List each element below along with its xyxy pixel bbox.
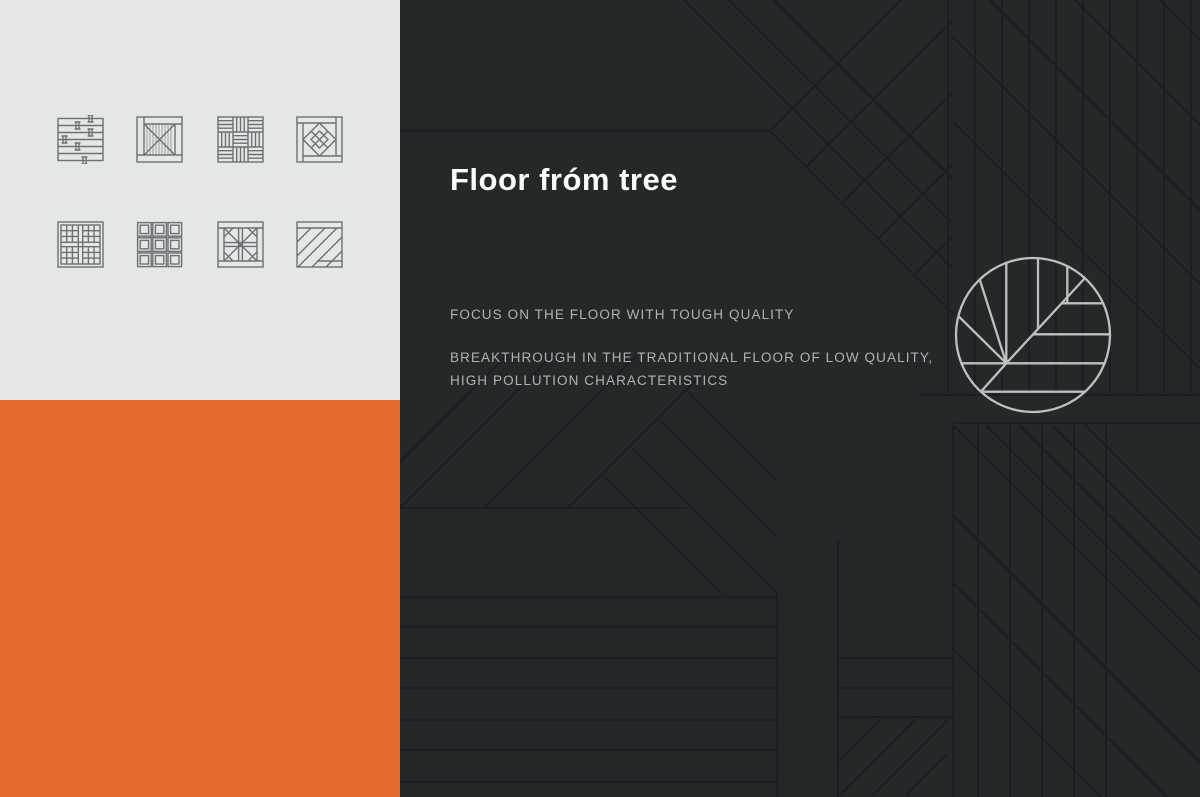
log-cabin-cross-icon [135,115,184,164]
square-tiles-icon [135,220,184,269]
description-line-2: HIGH POLLUTION CHARACTERISTICS [450,369,933,392]
welcome-panel: WELCÓME TÓ BEIDIHOMES [0,400,400,797]
leaf-circle-logo-icon [948,250,1118,420]
page-title: Floor fróm tree [450,162,678,198]
description-text: BREAKTHROUGH IN THE TRADITIONAL FLOOR OF… [450,346,933,392]
brand-slide: WELCÓME TÓ BEIDIHOMES [0,0,1200,797]
description-line-1: BREAKTHROUGH IN THE TRADITIONAL FLOOR OF… [450,346,933,369]
basketweave-icon [216,115,265,164]
tagline-text: FOCUS ON THE FLOOR WITH TOUGH QUALITY [450,305,794,324]
icon-panel [0,0,400,400]
diamond-lattice-icon [295,115,344,164]
diagonal-planks-icon [295,220,344,269]
content-panel: Floor fróm tree FOCUS ON THE FLOOR WITH … [400,0,1200,797]
horizontal-planks-icon [56,115,105,164]
window-grid-icon [56,220,105,269]
union-jack-parquet-icon [216,220,265,269]
